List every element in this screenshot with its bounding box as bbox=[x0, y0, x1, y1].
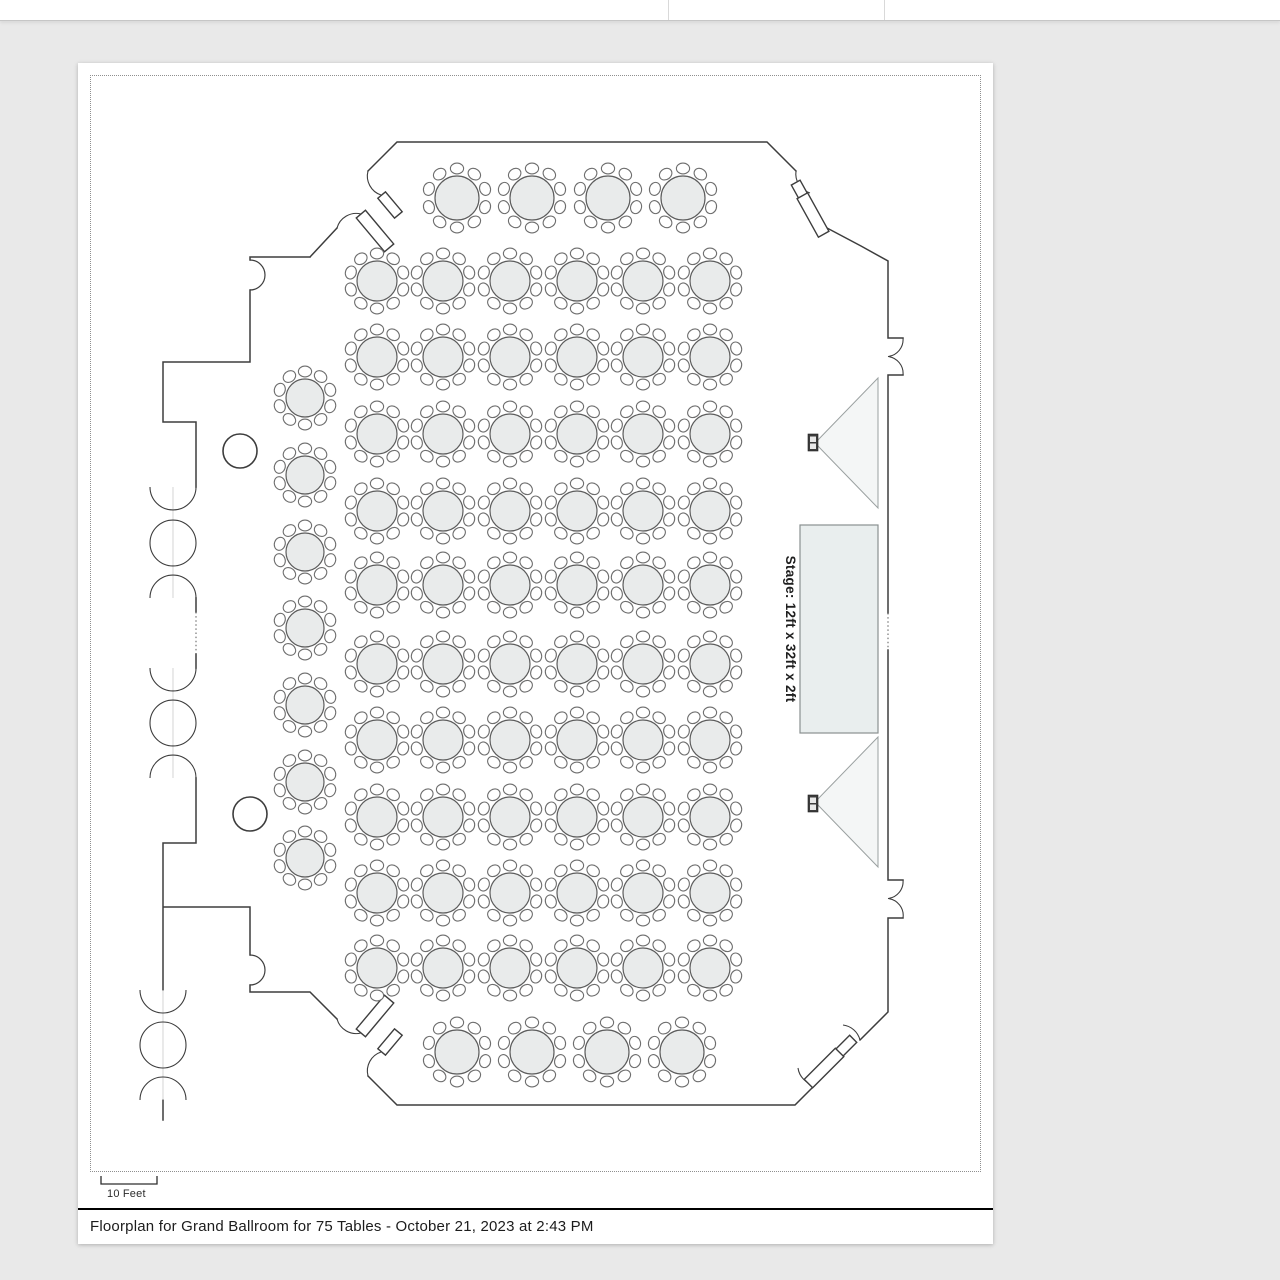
chair bbox=[647, 1035, 661, 1051]
chair bbox=[410, 724, 424, 740]
chair bbox=[703, 915, 716, 926]
chair bbox=[370, 915, 383, 926]
toolbar-divider bbox=[668, 0, 669, 20]
chair bbox=[344, 265, 358, 281]
round-table[interactable] bbox=[648, 163, 718, 233]
chair bbox=[600, 1017, 613, 1028]
table-top bbox=[490, 565, 530, 605]
chair bbox=[572, 1053, 586, 1069]
round-table[interactable] bbox=[410, 784, 477, 850]
round-table[interactable] bbox=[410, 935, 477, 1001]
chair bbox=[273, 459, 287, 475]
table-top bbox=[423, 644, 463, 684]
chair bbox=[503, 631, 516, 642]
table-top bbox=[690, 797, 730, 837]
chair bbox=[596, 569, 610, 585]
round-table[interactable] bbox=[677, 935, 744, 1001]
chair bbox=[544, 648, 558, 664]
chair bbox=[544, 952, 558, 968]
chair bbox=[662, 665, 676, 681]
chair bbox=[370, 456, 383, 467]
round-table[interactable] bbox=[677, 401, 744, 467]
table-top bbox=[490, 261, 530, 301]
chair bbox=[497, 199, 511, 215]
chair bbox=[529, 282, 543, 298]
chair bbox=[703, 1035, 717, 1051]
chair bbox=[662, 877, 676, 893]
chair bbox=[396, 282, 410, 298]
chair bbox=[662, 586, 676, 602]
chair bbox=[273, 536, 287, 552]
chair bbox=[497, 181, 511, 197]
round-table[interactable] bbox=[273, 596, 338, 660]
round-table[interactable] bbox=[544, 860, 611, 926]
chair bbox=[662, 741, 676, 757]
chair bbox=[703, 607, 716, 618]
corner-door-top-right bbox=[791, 171, 829, 237]
round-table[interactable] bbox=[410, 401, 477, 467]
chair bbox=[629, 199, 643, 215]
round-table[interactable] bbox=[422, 1017, 492, 1087]
chair bbox=[410, 665, 424, 681]
table-top bbox=[690, 948, 730, 988]
chair bbox=[497, 1053, 511, 1069]
round-table[interactable] bbox=[677, 631, 744, 697]
stage-group[interactable]: Stage: 12ft x 32ft x 2ft bbox=[783, 525, 878, 733]
chair bbox=[636, 839, 649, 850]
chair bbox=[529, 341, 543, 357]
chair bbox=[601, 163, 614, 174]
round-table[interactable] bbox=[497, 163, 567, 233]
chair bbox=[596, 741, 610, 757]
chair bbox=[298, 750, 311, 761]
chair bbox=[610, 741, 624, 757]
table-top bbox=[586, 176, 630, 220]
table-top bbox=[661, 176, 705, 220]
chair bbox=[436, 324, 449, 335]
table-top bbox=[423, 491, 463, 531]
round-table[interactable] bbox=[544, 401, 611, 467]
chair bbox=[323, 766, 337, 782]
chair bbox=[662, 341, 676, 357]
table-top bbox=[357, 414, 397, 454]
table-top bbox=[623, 797, 663, 837]
chair bbox=[323, 858, 337, 874]
round-table[interactable] bbox=[273, 826, 338, 890]
round-table[interactable] bbox=[572, 1017, 642, 1087]
structural-column bbox=[233, 797, 267, 831]
round-table[interactable] bbox=[477, 552, 544, 618]
round-table[interactable] bbox=[610, 248, 677, 314]
chair bbox=[450, 1017, 463, 1028]
round-table[interactable] bbox=[410, 860, 477, 926]
chair bbox=[729, 569, 743, 585]
chair bbox=[636, 686, 649, 697]
chair bbox=[396, 648, 410, 664]
chair bbox=[636, 248, 649, 259]
round-table[interactable] bbox=[344, 248, 411, 314]
chair bbox=[410, 265, 424, 281]
chair bbox=[570, 990, 583, 1001]
table-top bbox=[423, 873, 463, 913]
chair bbox=[370, 631, 383, 642]
round-table[interactable] bbox=[544, 552, 611, 618]
round-table[interactable] bbox=[477, 478, 544, 544]
chair bbox=[462, 512, 476, 528]
table-top bbox=[690, 873, 730, 913]
round-table[interactable] bbox=[544, 324, 611, 390]
chair bbox=[477, 265, 491, 281]
chair bbox=[396, 512, 410, 528]
chair bbox=[596, 665, 610, 681]
chair bbox=[462, 495, 476, 511]
chair bbox=[525, 163, 538, 174]
round-table[interactable] bbox=[544, 631, 611, 697]
speaker-top[interactable] bbox=[808, 378, 878, 508]
chair bbox=[298, 520, 311, 531]
round-table[interactable] bbox=[477, 248, 544, 314]
chair bbox=[610, 665, 624, 681]
chair bbox=[370, 990, 383, 1001]
round-table[interactable] bbox=[677, 860, 744, 926]
chair bbox=[370, 379, 383, 390]
chair bbox=[662, 265, 676, 281]
chair bbox=[729, 265, 743, 281]
round-table[interactable] bbox=[544, 784, 611, 850]
chair bbox=[628, 1053, 642, 1069]
table-top bbox=[557, 948, 597, 988]
round-table[interactable] bbox=[677, 248, 744, 314]
speaker-bottom[interactable] bbox=[808, 737, 878, 867]
chair bbox=[298, 649, 311, 660]
chair bbox=[503, 990, 516, 1001]
table-top bbox=[490, 873, 530, 913]
round-table[interactable] bbox=[273, 673, 338, 737]
round-table[interactable] bbox=[273, 443, 338, 507]
chair bbox=[703, 860, 716, 871]
chair bbox=[529, 586, 543, 602]
chair bbox=[610, 358, 624, 374]
chair bbox=[544, 818, 558, 834]
chair bbox=[273, 766, 287, 782]
chair bbox=[610, 495, 624, 511]
chair bbox=[729, 418, 743, 434]
chair bbox=[529, 724, 543, 740]
chair bbox=[677, 818, 691, 834]
round-table[interactable] bbox=[410, 707, 477, 773]
stage[interactable] bbox=[800, 525, 878, 733]
chair bbox=[610, 282, 624, 298]
chair bbox=[729, 801, 743, 817]
chair bbox=[729, 358, 743, 374]
chair bbox=[636, 631, 649, 642]
chair bbox=[462, 952, 476, 968]
chair bbox=[503, 303, 516, 314]
round-table[interactable] bbox=[410, 552, 477, 618]
chair bbox=[529, 569, 543, 585]
chair bbox=[610, 724, 624, 740]
round-table[interactable] bbox=[422, 163, 492, 233]
chair bbox=[323, 689, 337, 705]
chair bbox=[648, 199, 662, 215]
chair bbox=[436, 686, 449, 697]
floorplan-canvas: Stage: 12ft x 32ft x 2ft 10 Feet bbox=[78, 63, 993, 1244]
chair bbox=[544, 724, 558, 740]
chair bbox=[662, 418, 676, 434]
chair bbox=[647, 1053, 661, 1069]
round-table[interactable] bbox=[477, 935, 544, 1001]
chair bbox=[662, 495, 676, 511]
chair bbox=[544, 282, 558, 298]
chair bbox=[273, 612, 287, 628]
chair bbox=[703, 762, 716, 773]
chair bbox=[529, 418, 543, 434]
chair bbox=[662, 724, 676, 740]
round-table[interactable] bbox=[610, 478, 677, 544]
round-table[interactable] bbox=[344, 935, 411, 1001]
round-table[interactable] bbox=[344, 324, 411, 390]
chair bbox=[344, 495, 358, 511]
table-top bbox=[623, 644, 663, 684]
chair bbox=[610, 569, 624, 585]
round-table[interactable] bbox=[477, 860, 544, 926]
chair bbox=[636, 860, 649, 871]
table-top bbox=[490, 644, 530, 684]
chair bbox=[570, 533, 583, 544]
chair bbox=[422, 199, 436, 215]
chair bbox=[544, 586, 558, 602]
chair bbox=[370, 839, 383, 850]
table-top bbox=[357, 948, 397, 988]
round-table[interactable] bbox=[610, 935, 677, 1001]
chair bbox=[553, 1053, 567, 1069]
chair bbox=[570, 478, 583, 489]
chair bbox=[629, 181, 643, 197]
speaker-icon-cell bbox=[810, 444, 816, 450]
table-top bbox=[286, 379, 324, 417]
chair bbox=[596, 341, 610, 357]
chair bbox=[662, 569, 676, 585]
chair bbox=[436, 303, 449, 314]
round-table[interactable] bbox=[677, 784, 744, 850]
chair bbox=[370, 248, 383, 259]
chair bbox=[396, 741, 410, 757]
round-table[interactable] bbox=[273, 520, 338, 584]
round-table[interactable] bbox=[477, 707, 544, 773]
chair bbox=[344, 282, 358, 298]
table-top bbox=[490, 414, 530, 454]
chair bbox=[477, 665, 491, 681]
round-table[interactable] bbox=[273, 366, 338, 430]
chair bbox=[396, 495, 410, 511]
chair bbox=[436, 401, 449, 412]
chair bbox=[344, 969, 358, 985]
chair bbox=[477, 969, 491, 985]
chair bbox=[677, 569, 691, 585]
chair bbox=[344, 741, 358, 757]
chair bbox=[370, 860, 383, 871]
chair bbox=[323, 782, 337, 798]
round-table[interactable] bbox=[344, 478, 411, 544]
round-table[interactable] bbox=[344, 860, 411, 926]
chair bbox=[596, 265, 610, 281]
chair bbox=[410, 952, 424, 968]
chair bbox=[729, 894, 743, 910]
table-top bbox=[690, 565, 730, 605]
chair bbox=[570, 248, 583, 259]
round-table[interactable] bbox=[610, 631, 677, 697]
chair bbox=[323, 536, 337, 552]
round-table[interactable] bbox=[344, 552, 411, 618]
chair bbox=[544, 894, 558, 910]
chair bbox=[462, 586, 476, 602]
chair bbox=[410, 282, 424, 298]
chair bbox=[570, 303, 583, 314]
chair bbox=[273, 858, 287, 874]
chair bbox=[525, 1017, 538, 1028]
chair bbox=[677, 665, 691, 681]
round-table[interactable] bbox=[610, 552, 677, 618]
round-table[interactable] bbox=[544, 248, 611, 314]
chair bbox=[662, 282, 676, 298]
chair bbox=[298, 443, 311, 454]
chair bbox=[462, 358, 476, 374]
round-table[interactable] bbox=[677, 552, 744, 618]
table-top bbox=[357, 644, 397, 684]
chair bbox=[596, 877, 610, 893]
chair bbox=[662, 648, 676, 664]
table-top bbox=[623, 948, 663, 988]
chair bbox=[676, 222, 689, 233]
chair bbox=[529, 952, 543, 968]
chair bbox=[544, 512, 558, 528]
wall-niche-arc bbox=[250, 260, 265, 985]
chair bbox=[677, 495, 691, 511]
table-top bbox=[357, 873, 397, 913]
scale-label: 10 Feet bbox=[107, 1188, 146, 1200]
round-table[interactable] bbox=[344, 631, 411, 697]
chair bbox=[662, 435, 676, 451]
chair bbox=[703, 478, 716, 489]
chair bbox=[323, 628, 337, 644]
round-table[interactable] bbox=[610, 860, 677, 926]
round-table[interactable] bbox=[544, 478, 611, 544]
chair bbox=[370, 478, 383, 489]
chair bbox=[677, 418, 691, 434]
round-table[interactable] bbox=[477, 324, 544, 390]
round-table[interactable] bbox=[273, 750, 338, 814]
round-table[interactable] bbox=[497, 1017, 567, 1087]
chair bbox=[703, 990, 716, 1001]
chair bbox=[344, 512, 358, 528]
chair bbox=[703, 533, 716, 544]
chair bbox=[477, 648, 491, 664]
speaker-icon-cell bbox=[810, 798, 816, 804]
chair bbox=[544, 435, 558, 451]
chair bbox=[344, 665, 358, 681]
round-table[interactable] bbox=[344, 784, 411, 850]
chair bbox=[450, 222, 463, 233]
round-table[interactable] bbox=[410, 478, 477, 544]
round-table[interactable] bbox=[344, 401, 411, 467]
chair bbox=[729, 341, 743, 357]
chair bbox=[503, 784, 516, 795]
chair bbox=[477, 358, 491, 374]
chair bbox=[596, 358, 610, 374]
round-table[interactable] bbox=[544, 707, 611, 773]
round-table[interactable] bbox=[410, 631, 477, 697]
chair bbox=[396, 265, 410, 281]
chair bbox=[450, 1076, 463, 1087]
chair bbox=[298, 573, 311, 584]
chair bbox=[675, 1017, 688, 1028]
round-table[interactable] bbox=[344, 707, 411, 773]
chair bbox=[436, 839, 449, 850]
chair bbox=[323, 398, 337, 414]
round-table[interactable] bbox=[573, 163, 643, 233]
table-top bbox=[490, 797, 530, 837]
round-table[interactable] bbox=[477, 784, 544, 850]
chair bbox=[370, 401, 383, 412]
chair bbox=[544, 665, 558, 681]
round-table[interactable] bbox=[477, 631, 544, 697]
chair bbox=[636, 990, 649, 1001]
round-table[interactable] bbox=[610, 707, 677, 773]
chair bbox=[596, 818, 610, 834]
chair bbox=[544, 418, 558, 434]
chair bbox=[596, 969, 610, 985]
chair bbox=[323, 382, 337, 398]
chair bbox=[703, 1053, 717, 1069]
round-table[interactable] bbox=[677, 324, 744, 390]
table-top bbox=[557, 720, 597, 760]
chair bbox=[462, 282, 476, 298]
chair bbox=[573, 181, 587, 197]
chair bbox=[410, 418, 424, 434]
chair bbox=[544, 741, 558, 757]
table-top bbox=[423, 797, 463, 837]
round-table[interactable] bbox=[610, 401, 677, 467]
table-top bbox=[690, 261, 730, 301]
round-table[interactable] bbox=[677, 707, 744, 773]
chair bbox=[636, 478, 649, 489]
chair bbox=[503, 762, 516, 773]
chair bbox=[729, 818, 743, 834]
round-table[interactable] bbox=[410, 324, 477, 390]
chair bbox=[436, 607, 449, 618]
chair bbox=[323, 459, 337, 475]
chair bbox=[396, 952, 410, 968]
round-table[interactable] bbox=[647, 1017, 717, 1087]
chair bbox=[570, 784, 583, 795]
table-top bbox=[286, 686, 324, 724]
speaker-icon-cell bbox=[810, 805, 816, 811]
chair bbox=[662, 952, 676, 968]
chair bbox=[344, 358, 358, 374]
chair bbox=[703, 401, 716, 412]
round-table[interactable] bbox=[610, 324, 677, 390]
round-table[interactable] bbox=[477, 401, 544, 467]
chair bbox=[596, 512, 610, 528]
chair bbox=[436, 935, 449, 946]
chair bbox=[544, 495, 558, 511]
round-table[interactable] bbox=[610, 784, 677, 850]
round-table[interactable] bbox=[677, 478, 744, 544]
round-table[interactable] bbox=[544, 935, 611, 1001]
structural-column bbox=[223, 434, 257, 468]
round-table[interactable] bbox=[410, 248, 477, 314]
chair bbox=[450, 163, 463, 174]
